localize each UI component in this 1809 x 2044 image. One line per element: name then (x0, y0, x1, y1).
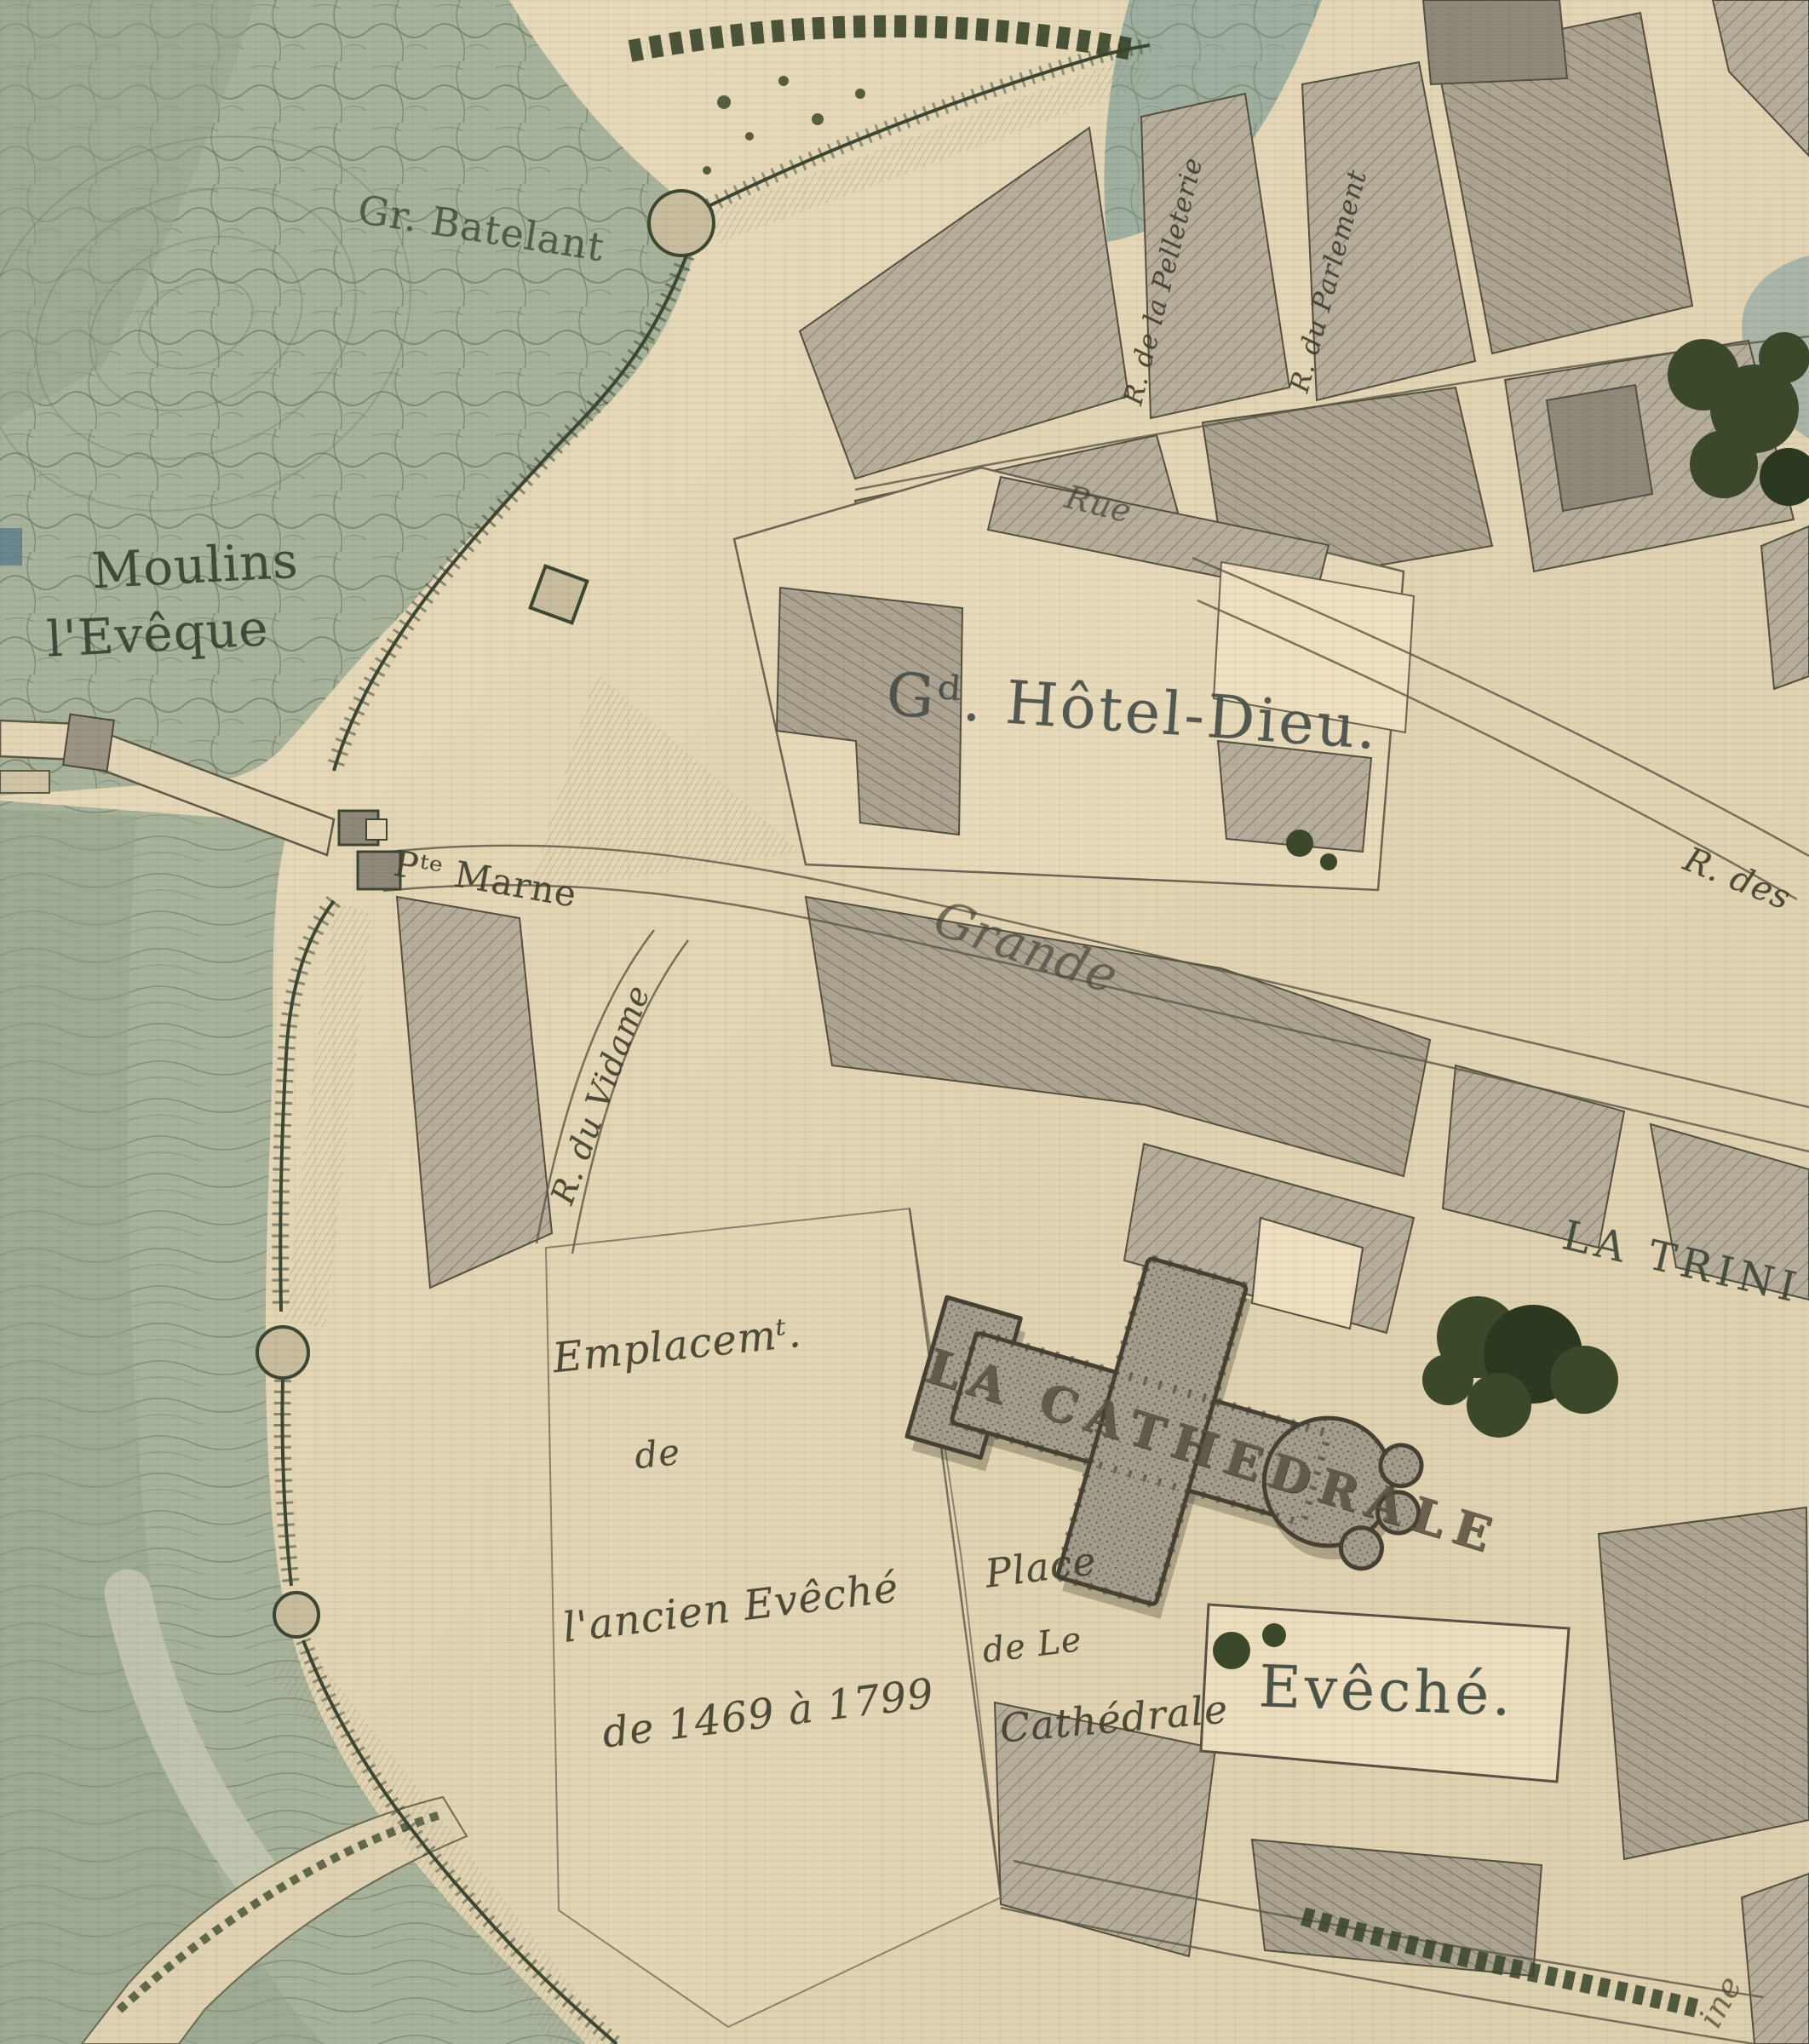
hedge-top (630, 26, 1133, 51)
map-canvas (0, 0, 1809, 2044)
tree (1320, 853, 1337, 870)
tree (1262, 1623, 1286, 1647)
label-moulins-line1: Moulins (90, 531, 300, 600)
shrubs-top-bank (703, 76, 865, 175)
block (1713, 0, 1809, 156)
block (1742, 1874, 1809, 2044)
bastion-tower (257, 1327, 308, 1378)
block (1599, 1507, 1809, 1859)
tree-cluster-cathedral (1422, 1296, 1618, 1438)
building (1547, 385, 1652, 511)
block (397, 897, 552, 1288)
block (1761, 526, 1809, 689)
tree (1286, 830, 1313, 857)
building (1423, 0, 1567, 84)
bastion-tower (274, 1593, 319, 1637)
label-moulins-line2: l'Evêque (45, 599, 270, 669)
historic-city-map: Gr. Batelant Moulins l'Evêque Gᵈ. Hôtel-… (0, 0, 1809, 2044)
wall-tower (531, 566, 588, 623)
tree (1213, 1632, 1250, 1669)
bastion-tower (649, 191, 714, 255)
label-eveche: Evêché. (1258, 1653, 1516, 1729)
label-emplacement-line2: de (633, 1431, 683, 1477)
